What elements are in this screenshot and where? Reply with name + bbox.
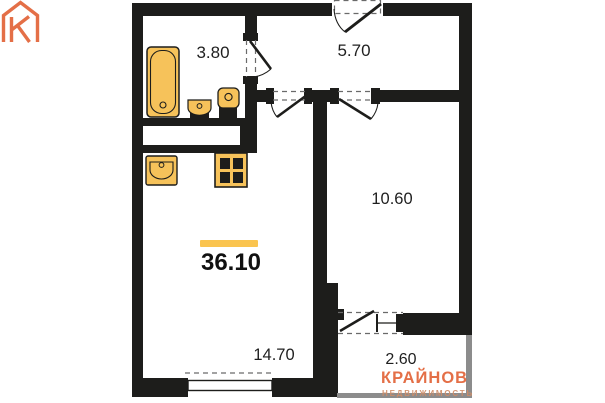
jamb-block xyxy=(371,88,380,104)
window xyxy=(188,381,272,391)
wall-hall-seg2 xyxy=(372,90,459,102)
wall-left xyxy=(132,3,143,397)
toilet-icon xyxy=(218,88,239,118)
bathroom-door xyxy=(250,41,271,77)
wall-niche-connector xyxy=(240,118,257,153)
area-label-bedroom: 10.60 xyxy=(371,191,412,208)
jamb-block xyxy=(337,309,344,320)
area-label-living-kitchen: 14.70 xyxy=(253,347,294,364)
total-area-label: 36.10 xyxy=(201,251,261,275)
wall-bedroom-bottom xyxy=(403,313,472,335)
floor-plan-drawing xyxy=(0,0,605,403)
bathtub-icon xyxy=(147,47,179,117)
jamb-block xyxy=(243,76,258,84)
balcony-door-window xyxy=(340,311,399,332)
wall-bathroom-bottom xyxy=(132,118,257,126)
balcony-wall-bottom xyxy=(337,393,472,398)
wall-right xyxy=(459,3,472,335)
area-label-balcony: 2.60 xyxy=(385,352,416,368)
fixtures xyxy=(146,47,247,187)
wall-top-left xyxy=(132,3,332,16)
washbasin-icon xyxy=(188,100,211,118)
stove-4-burner-icon xyxy=(215,153,247,187)
total-area-underline xyxy=(200,240,258,247)
area-label-hallway: 5.70 xyxy=(337,42,370,59)
balcony-wall-right xyxy=(466,335,472,397)
wall-kitchen-niche xyxy=(132,145,250,153)
wall-balcony-pier xyxy=(313,283,338,397)
floor-plan: 3.80 5.70 10.60 14.70 2.60 36.10 КРАЙНОВ… xyxy=(0,0,605,403)
living-room-door xyxy=(271,95,307,117)
walls xyxy=(132,3,472,397)
jamb-block xyxy=(266,88,274,104)
kitchen-sink-icon xyxy=(146,156,177,185)
wall-top-right xyxy=(383,3,472,16)
area-label-bathroom: 3.80 xyxy=(196,44,229,61)
jamb-block xyxy=(330,88,339,104)
wall-bottom-left xyxy=(132,378,188,397)
wall-room-divider xyxy=(313,102,327,283)
jamb-block xyxy=(243,33,258,41)
